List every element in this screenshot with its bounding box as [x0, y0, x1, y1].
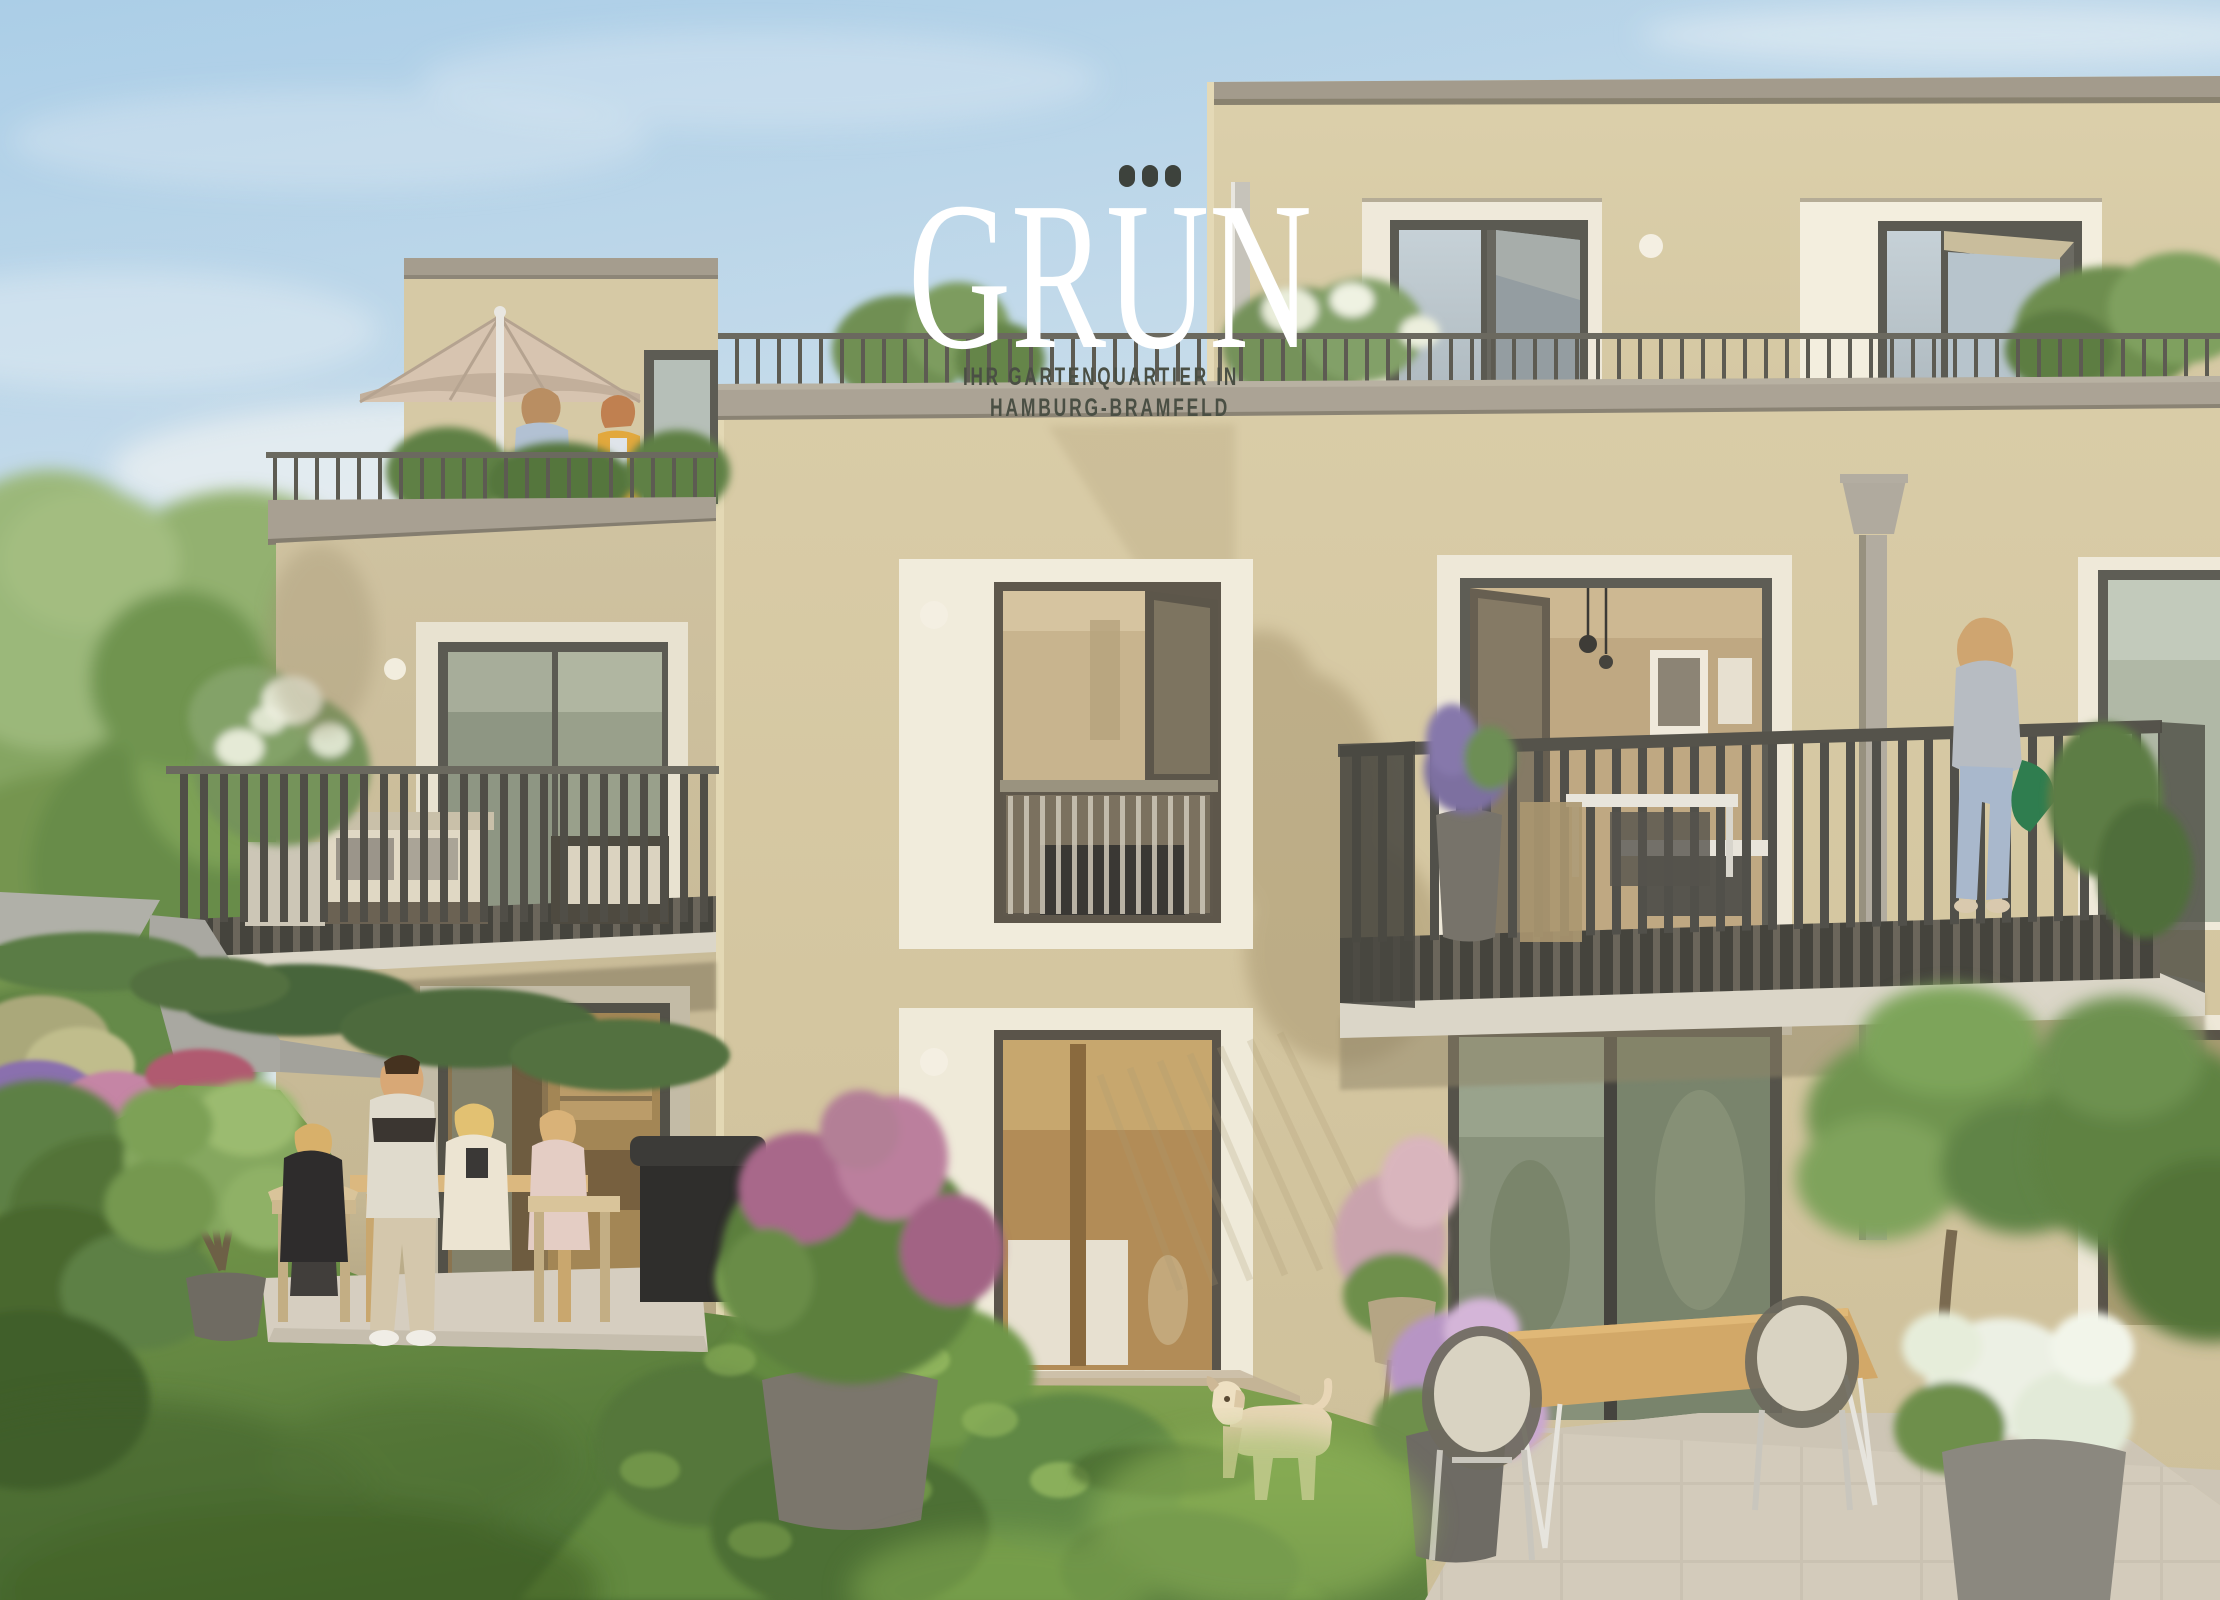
svg-text:HAMBURG-BRAMFELD: HAMBURG-BRAMFELD: [990, 394, 1230, 422]
svg-text:GRUN: GRUN: [908, 158, 1312, 393]
svg-text:IHR GARTENQUARTIER IN: IHR GARTENQUARTIER IN: [963, 363, 1239, 391]
